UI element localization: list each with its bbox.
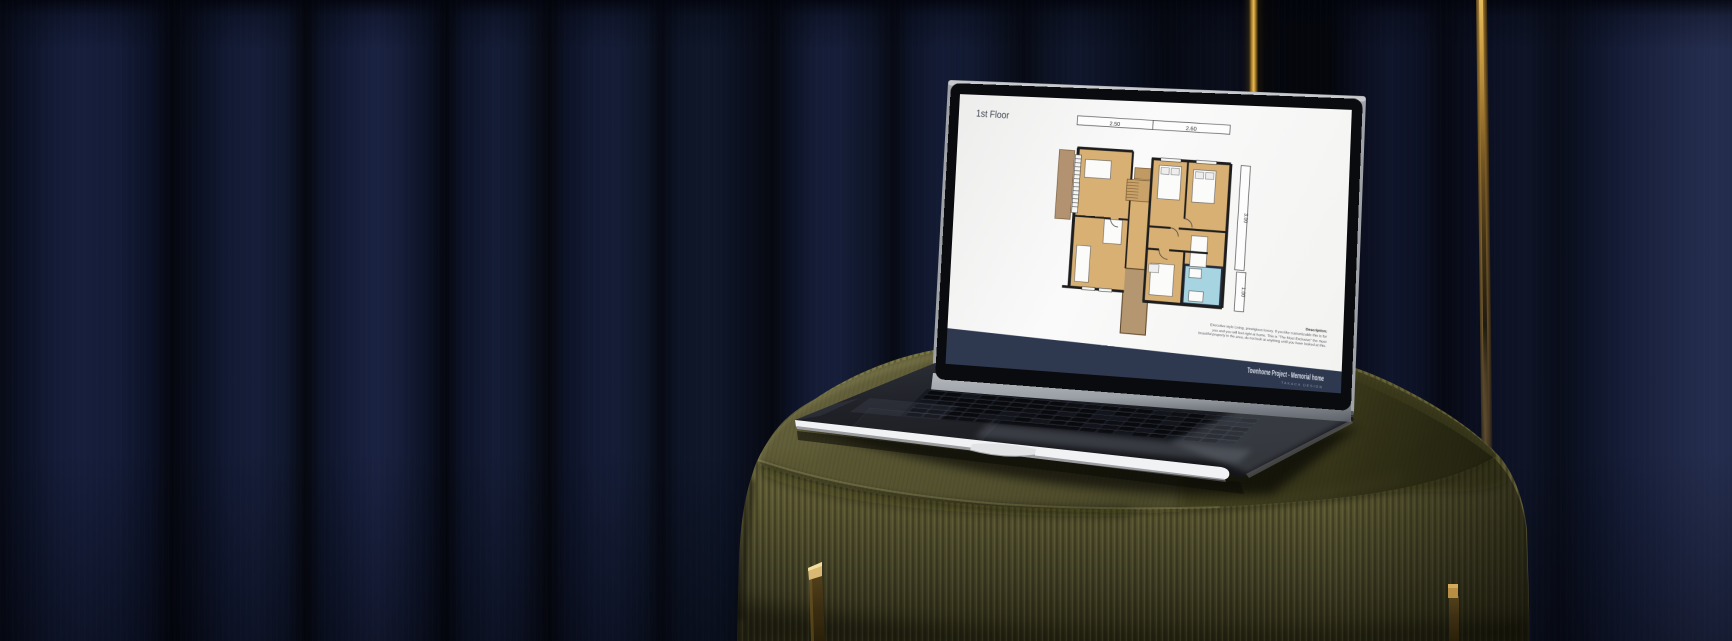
svg-text:2.60: 2.60 xyxy=(1186,126,1198,133)
svg-text:2.50: 2.50 xyxy=(1109,121,1120,128)
svg-text:3.00: 3.00 xyxy=(1243,213,1249,224)
svg-text:1.00: 1.00 xyxy=(1240,287,1246,298)
